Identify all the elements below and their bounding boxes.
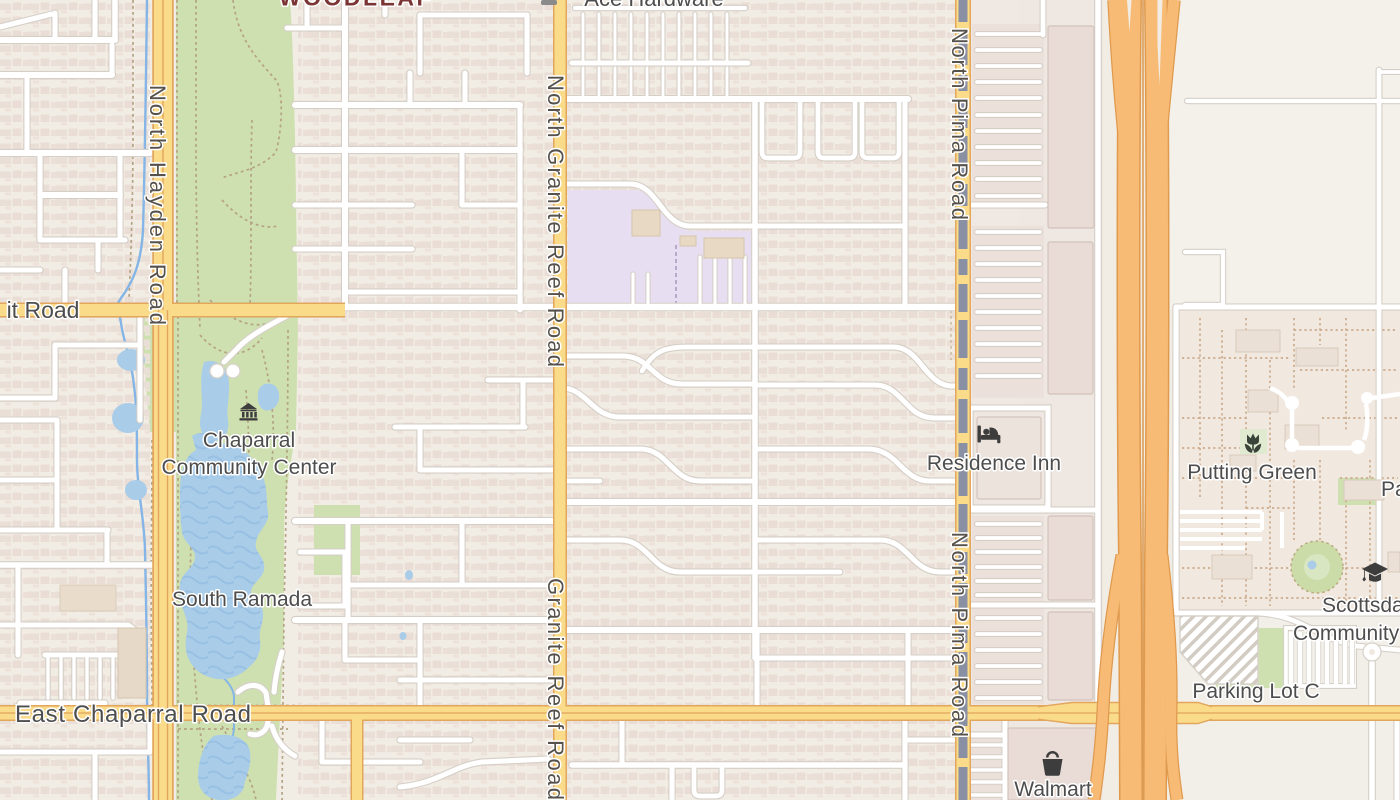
svg-text:Parking Lot C: Parking Lot C xyxy=(1192,680,1319,703)
svg-text:South Ramada: South Ramada xyxy=(172,588,312,611)
svg-text:Ace Hardware: Ace Hardware xyxy=(584,0,723,11)
svg-text:Residence Inn: Residence Inn xyxy=(927,452,1061,475)
svg-text:North Hayden Road: North Hayden Road xyxy=(145,85,170,325)
svg-text:Community Center: Community Center xyxy=(161,456,336,479)
svg-text:Scottsdale: Scottsdale xyxy=(1322,594,1400,617)
svg-text:East Chaparral Road: East Chaparral Road xyxy=(15,701,251,728)
svg-text:Granite Reef Road: Granite Reef Road xyxy=(543,578,568,800)
svg-text:Community Colle: Community Colle xyxy=(1293,622,1400,645)
svg-text:North Granite Reef Road: North Granite Reef Road xyxy=(543,75,568,367)
svg-text:Walmart: Walmart xyxy=(1014,778,1092,800)
svg-text:Parking: Parking xyxy=(1381,478,1400,501)
svg-text:Putting Green: Putting Green xyxy=(1187,461,1317,484)
svg-text:WOODLEAF: WOODLEAF xyxy=(279,0,433,11)
svg-text:North Pima Road: North Pima Road xyxy=(947,28,972,220)
svg-text:Chaparral: Chaparral xyxy=(203,429,295,452)
svg-text:it Road: it Road xyxy=(7,297,80,323)
